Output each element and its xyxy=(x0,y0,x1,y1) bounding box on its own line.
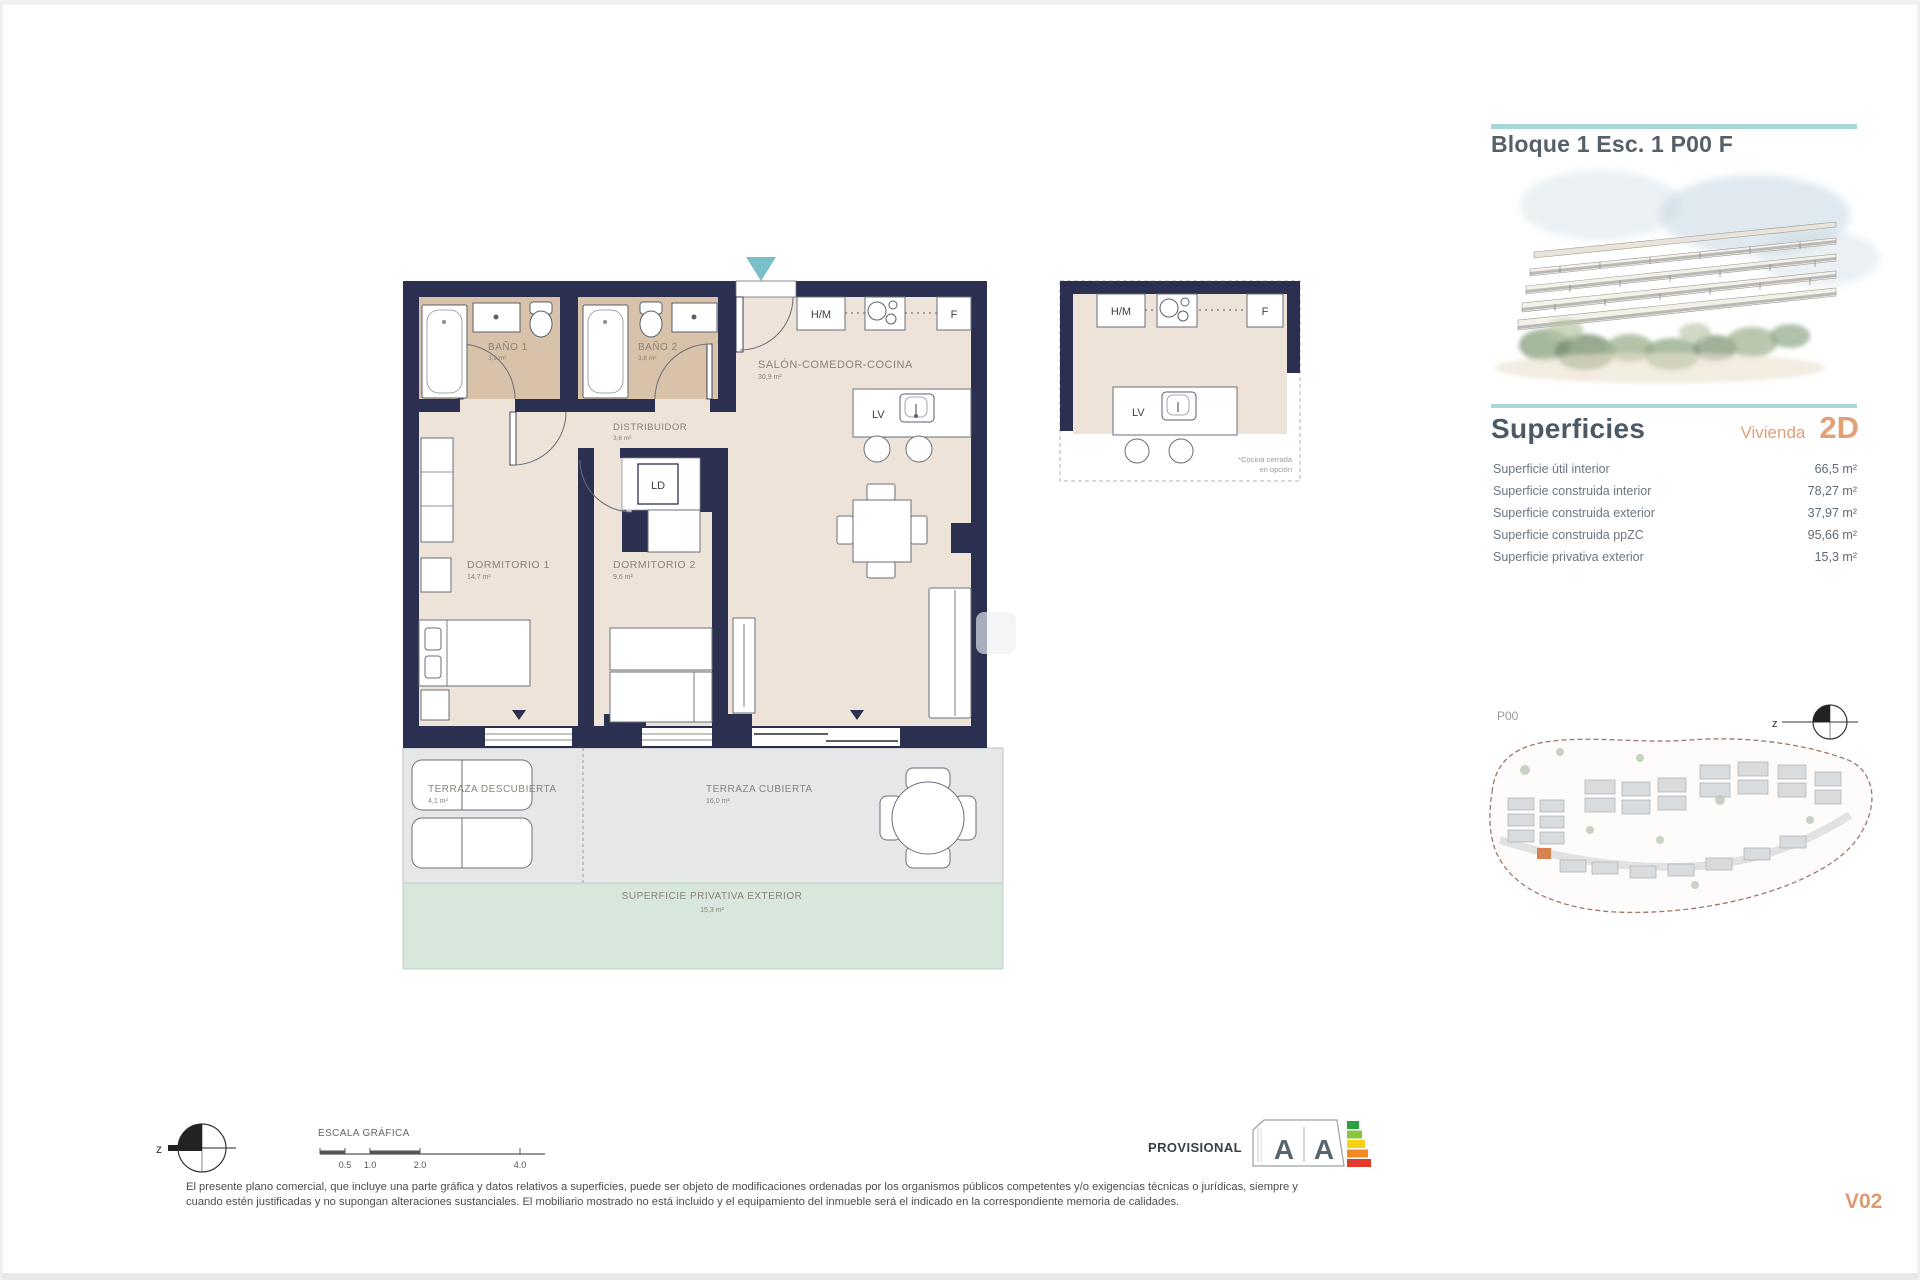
superficies-accent-line xyxy=(1491,404,1857,408)
room-area-living: 30,9 m² xyxy=(758,374,782,381)
disclaimer-line2: cuando estén justificadas y no supongan … xyxy=(186,1195,1431,1210)
version-label: V02 xyxy=(1845,1190,1882,1214)
superficies-row: Superficie construida ppZC 95,66 m² xyxy=(1493,524,1857,546)
room-label-bed2: DORMITORIO 2 xyxy=(613,559,696,571)
kitchen-note-line1: *Cocina cerrada xyxy=(1238,455,1293,464)
room-label-living: SALÓN-COMEDOR-COCINA xyxy=(758,358,913,371)
superficies-row-label: Superficie útil interior xyxy=(1493,458,1610,480)
superficies-row-value: 66,5 m² xyxy=(1815,458,1857,480)
room-area-bed1: 14,7 m² xyxy=(467,574,491,581)
hm-label-detail: H/M xyxy=(1111,306,1131,318)
main-floorplan: H/M F LV xyxy=(403,257,1003,969)
page-edge-top xyxy=(0,0,1920,5)
hm-label: H/M xyxy=(811,309,831,321)
room-label-bed1: DORMITORIO 1 xyxy=(467,559,550,571)
kitchen-note-line2: en opción xyxy=(1259,465,1292,474)
footer-north-label: z xyxy=(156,1142,162,1156)
building-rendering xyxy=(1495,170,1880,383)
plan-sheet-page: H/M F LV xyxy=(0,0,1920,1280)
superficies-table: Superficie útil interior 66,5 m² Superfi… xyxy=(1493,458,1857,568)
room-label-private-ext: SUPERFICIE PRIVATIVA EXTERIOR xyxy=(622,891,803,902)
superficies-row: Superficie privativa exterior 15,3 m² xyxy=(1493,546,1857,568)
disclaimer: El presente plano comercial, que incluye… xyxy=(186,1180,1431,1210)
laundry-label: LD xyxy=(651,480,665,492)
page-edge-bottom xyxy=(0,1273,1920,1280)
room-area-terrace-covered: 16,0 m² xyxy=(706,798,730,805)
scale-tick-2: 2.0 xyxy=(414,1160,427,1170)
superficies-row-label: Superficie construida exterior xyxy=(1493,502,1655,524)
header-accent-line xyxy=(1491,124,1857,129)
sliding-door-living xyxy=(752,728,900,746)
room-label-terrace-covered: TERRAZA CUBIERTA xyxy=(706,784,813,795)
scale-title: ESCALA GRÁFICA xyxy=(318,1128,410,1139)
scale-bar: 0.5 1.0 2.0 4.0 xyxy=(320,1148,545,1170)
tv-unit xyxy=(733,618,755,713)
fridge-label: F xyxy=(951,309,958,321)
sofa xyxy=(929,588,971,718)
energy-letter-a1: A xyxy=(1274,1134,1294,1165)
window-bedroom1 xyxy=(485,728,572,746)
siteplan-north-compass: z xyxy=(1772,705,1858,739)
superficies-row-value: 37,97 m² xyxy=(1808,502,1857,524)
unit-location-marker xyxy=(1537,848,1551,859)
bedroom2-furniture xyxy=(610,628,712,722)
energy-letter-a2: A xyxy=(1314,1134,1334,1165)
superficies-row: Superficie útil interior 66,5 m² xyxy=(1493,458,1857,480)
page-title: Bloque 1 Esc. 1 P00 F xyxy=(1491,131,1733,158)
provisional-label: PROVISIONAL xyxy=(1148,1140,1242,1155)
superficies-row: Superficie construida interior 78,27 m² xyxy=(1493,480,1857,502)
superficies-row: Superficie construida exterior 37,97 m² xyxy=(1493,502,1857,524)
energy-rating-logo: A A xyxy=(1253,1120,1371,1167)
siteplan-floor-label: P00 xyxy=(1497,709,1519,723)
superficies-row-label: Superficie construida ppZC xyxy=(1493,524,1644,546)
vivienda-label: Vivienda xyxy=(1740,423,1805,443)
kitchen-counter: H/M F xyxy=(797,297,971,330)
entrance-arrow-icon xyxy=(746,257,776,281)
hob xyxy=(865,297,905,330)
window-bedroom2 xyxy=(642,728,712,746)
vivienda-type-badge: 2D xyxy=(1819,410,1859,446)
superficies-row-value: 15,3 m² xyxy=(1815,546,1857,568)
site-plan: P00 xyxy=(1490,705,1872,912)
superficies-row-value: 95,66 m² xyxy=(1808,524,1857,546)
dishwasher-label: LV xyxy=(872,409,885,421)
room-label-terrace-open: TERRAZA DESCUBIERTA xyxy=(428,784,557,795)
footer-north-compass: z xyxy=(156,1124,236,1172)
superficies-row-label: Superficie privativa exterior xyxy=(1493,546,1644,568)
scale-tick-1: 1.0 xyxy=(364,1160,377,1170)
room-label-bath2: BAÑO 2 xyxy=(638,340,678,353)
room-label-hall: DISTRIBUIDOR xyxy=(613,422,687,433)
superficies-heading: Superficies xyxy=(1491,413,1645,445)
room-area-bath1: 3,9 m² xyxy=(488,355,507,362)
room-area-bath2: 3,8 m² xyxy=(638,355,657,362)
scale-tick-3: 4.0 xyxy=(514,1160,527,1170)
dishwasher-label-detail: LV xyxy=(1132,407,1145,419)
superficies-row-label: Superficie construida interior xyxy=(1493,480,1651,502)
fridge-label-detail: F xyxy=(1262,306,1269,318)
room-area-terrace-open: 4,1 m² xyxy=(428,798,449,805)
scale-tick-0: 0.5 xyxy=(339,1160,352,1170)
room-area-hall: 3,6 m² xyxy=(613,435,632,442)
superficies-header: Superficies Vivienda 2D xyxy=(1491,410,1859,446)
room-area-bed2: 9,6 m² xyxy=(613,574,634,581)
room-area-private-ext: 15,3 m² xyxy=(700,907,724,914)
plan-canvas: H/M F LV xyxy=(0,0,1920,1280)
superficies-row-value: 78,27 m² xyxy=(1808,480,1857,502)
siteplan-north-label: z xyxy=(1772,718,1778,730)
room-label-bath1: BAÑO 1 xyxy=(488,340,528,353)
watermark xyxy=(976,612,1016,654)
page-edge-left xyxy=(0,0,3,1280)
kitchen-option-detail: H/M F LV *Cocina cerrada en opción xyxy=(1060,281,1300,481)
disclaimer-line1: El presente plano comercial, que incluye… xyxy=(186,1180,1431,1195)
